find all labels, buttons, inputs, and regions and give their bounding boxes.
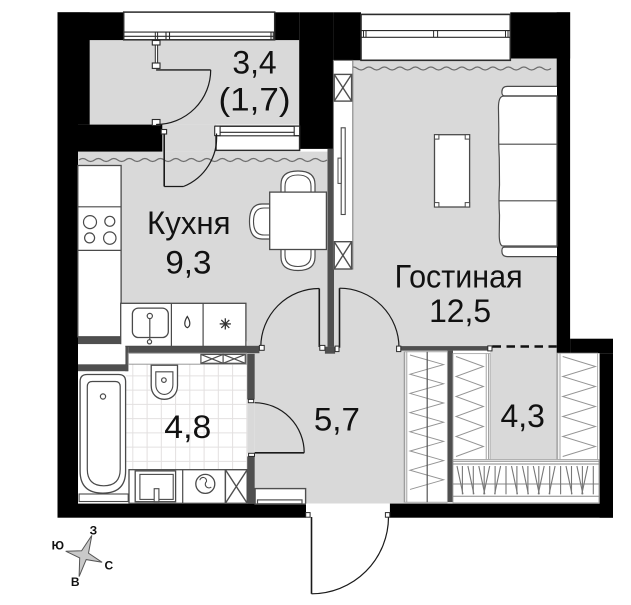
svg-text:(1,7): (1,7) <box>219 82 291 118</box>
svg-text:4,8: 4,8 <box>164 409 211 445</box>
svg-text:4,3: 4,3 <box>501 398 545 434</box>
svg-text:12,5: 12,5 <box>429 293 491 329</box>
svg-text:В: В <box>71 575 80 589</box>
svg-text:Гостиная: Гостиная <box>395 258 523 294</box>
svg-text:9,3: 9,3 <box>165 244 211 280</box>
svg-text:З: З <box>90 524 98 538</box>
svg-text:Кухня: Кухня <box>147 205 231 241</box>
svg-text:Ю: Ю <box>52 539 64 553</box>
svg-text:5,7: 5,7 <box>314 402 360 438</box>
svg-text:С: С <box>104 558 113 572</box>
svg-text:3,4: 3,4 <box>232 44 276 80</box>
